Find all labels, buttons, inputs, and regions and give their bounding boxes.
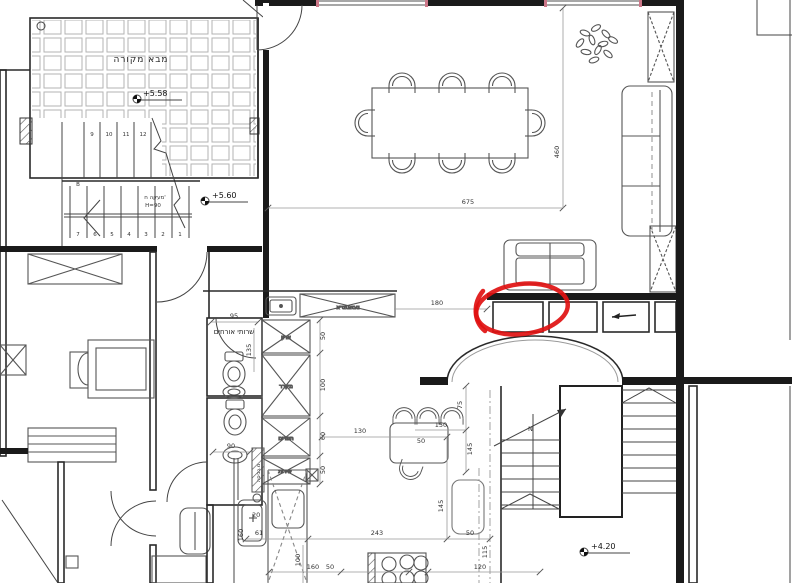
level-value: +4.20: [591, 542, 616, 551]
window-marker-icon: [544, 0, 547, 7]
dining-chair: [489, 73, 515, 93]
floor-plan: מבא מקורה 9 10 11 12 7 6 5 4 3 2: [0, 0, 792, 583]
dim-wc2-width: 90: [227, 442, 235, 450]
dim-bar-right: 145: [466, 443, 474, 455]
cabinet-label-fridge: מקרר: [279, 384, 293, 390]
door-swing: [167, 462, 207, 502]
dim-right-width: 120: [474, 563, 486, 571]
dim-bar-length: 150: [435, 421, 447, 429]
door-opening: [263, 3, 269, 50]
bar-stool: [393, 408, 415, 425]
landing-label: B: [76, 182, 80, 188]
dim-island-w: 100: [294, 554, 302, 566]
dim-dining-depth: 460: [553, 146, 561, 158]
vanity: [70, 340, 154, 398]
dim-fridge: 100: [319, 379, 327, 391]
dim-island-side: 145: [437, 500, 445, 512]
double-door: [111, 491, 156, 546]
neighbor-corner: [757, 0, 792, 35]
cabinet-label-ovens: תנורים: [278, 436, 294, 442]
stair-number: 5: [110, 232, 114, 238]
stair-number: 10: [106, 132, 113, 138]
red-ellipse-highlight: [473, 279, 570, 340]
tall-cabinets: ארון מקרר תנורים שירות: [262, 320, 318, 484]
laundry-label: מ.כביסה: [256, 464, 262, 482]
floor-plan-canvas: מבא מקורה 9 10 11 12 7 6 5 4 3 2: [0, 0, 792, 583]
toilet-icon: [224, 400, 246, 435]
guest-wc: שרותי אורחים: [70, 252, 262, 583]
wall-hatch: [20, 118, 32, 144]
stair-number: 11: [123, 132, 130, 138]
dim-aisle: 130: [354, 427, 366, 435]
bar-counter: [390, 408, 463, 483]
cabinet-label-closet: ארון: [281, 335, 291, 341]
plant-icon: [575, 23, 619, 64]
dim-closet: 50: [319, 332, 327, 340]
break-line: [173, 176, 185, 228]
dining-table: [355, 73, 545, 173]
level-value: +5.58: [143, 89, 168, 98]
stair-number: 3: [144, 232, 148, 238]
dim-bar-depth: 75: [456, 401, 464, 409]
dim-island-d: 160: [237, 529, 245, 541]
dim-run: 243: [371, 529, 383, 537]
dining-chair: [389, 73, 415, 93]
dim-dining-width: 675: [462, 198, 474, 206]
level-marker-lower: +4.20: [580, 542, 630, 556]
dining-chair: [439, 153, 465, 173]
arched-opening: [420, 336, 792, 385]
window-marker-icon: [425, 0, 428, 7]
stair-number: 1: [178, 232, 182, 238]
dining-room: [257, 0, 790, 340]
electric-symbol-icon: [612, 313, 636, 319]
dim-right-depth: 115: [481, 546, 489, 558]
counter-label: א.מחייבים: [336, 304, 360, 310]
sofa: [622, 86, 672, 236]
wall-pilaster: [648, 12, 674, 82]
level-marker-hall: +5.60: [201, 191, 248, 205]
stair-number: 12: [140, 132, 147, 138]
upper-counter: א.מחייבים: [300, 294, 395, 317]
stair-number: 6: [93, 232, 97, 238]
direction-label: N: [528, 425, 533, 433]
window-marker-icon: [316, 0, 319, 7]
railing-label: מעקה ח': [144, 195, 166, 201]
stair-chevron: [501, 494, 559, 509]
niche-wall: [487, 293, 684, 332]
dining-chair: [439, 73, 465, 93]
railing-height-label: H=90: [145, 203, 161, 209]
stair-number: 7: [76, 232, 80, 238]
entry-porch: מבא מקורה: [20, 18, 259, 178]
room-label-porch: מבא מקורה: [113, 55, 168, 65]
window-marker-icon: [639, 0, 642, 7]
dim-stove-gap: 50: [466, 529, 474, 537]
dim-service: 50: [319, 466, 327, 474]
dim-counter-gap: 61: [255, 529, 263, 537]
stair-number: 2: [161, 232, 165, 238]
stair-number: 4: [127, 232, 131, 238]
top-wall: [243, 0, 792, 35]
dim-wc-depth: 135: [245, 344, 253, 356]
dim-bottom-b: 50: [326, 563, 334, 571]
shower-tray: [180, 508, 210, 554]
grille-unit: [28, 428, 116, 462]
dim-laundry: 20: [252, 511, 260, 519]
room-label-guest-wc: שרותי אורחים: [214, 328, 255, 336]
dim-bar-gap: 50: [417, 437, 425, 445]
dim-bottom-a: 160: [307, 563, 319, 571]
stair-void: [560, 386, 622, 517]
stair-direction-arrow: [84, 200, 100, 236]
dim-wc-width: 95: [230, 312, 238, 320]
level-value: +5.60: [212, 191, 237, 200]
door-swing: [157, 252, 207, 302]
dining-chair: [489, 153, 515, 173]
dim-opening: 180: [431, 299, 443, 307]
stair-number: 9: [90, 132, 94, 138]
cooktop-icon: [368, 553, 428, 583]
dining-chair: [389, 153, 415, 173]
kitchen-sink-icon: [266, 297, 296, 315]
toilet-icon: [223, 352, 245, 387]
